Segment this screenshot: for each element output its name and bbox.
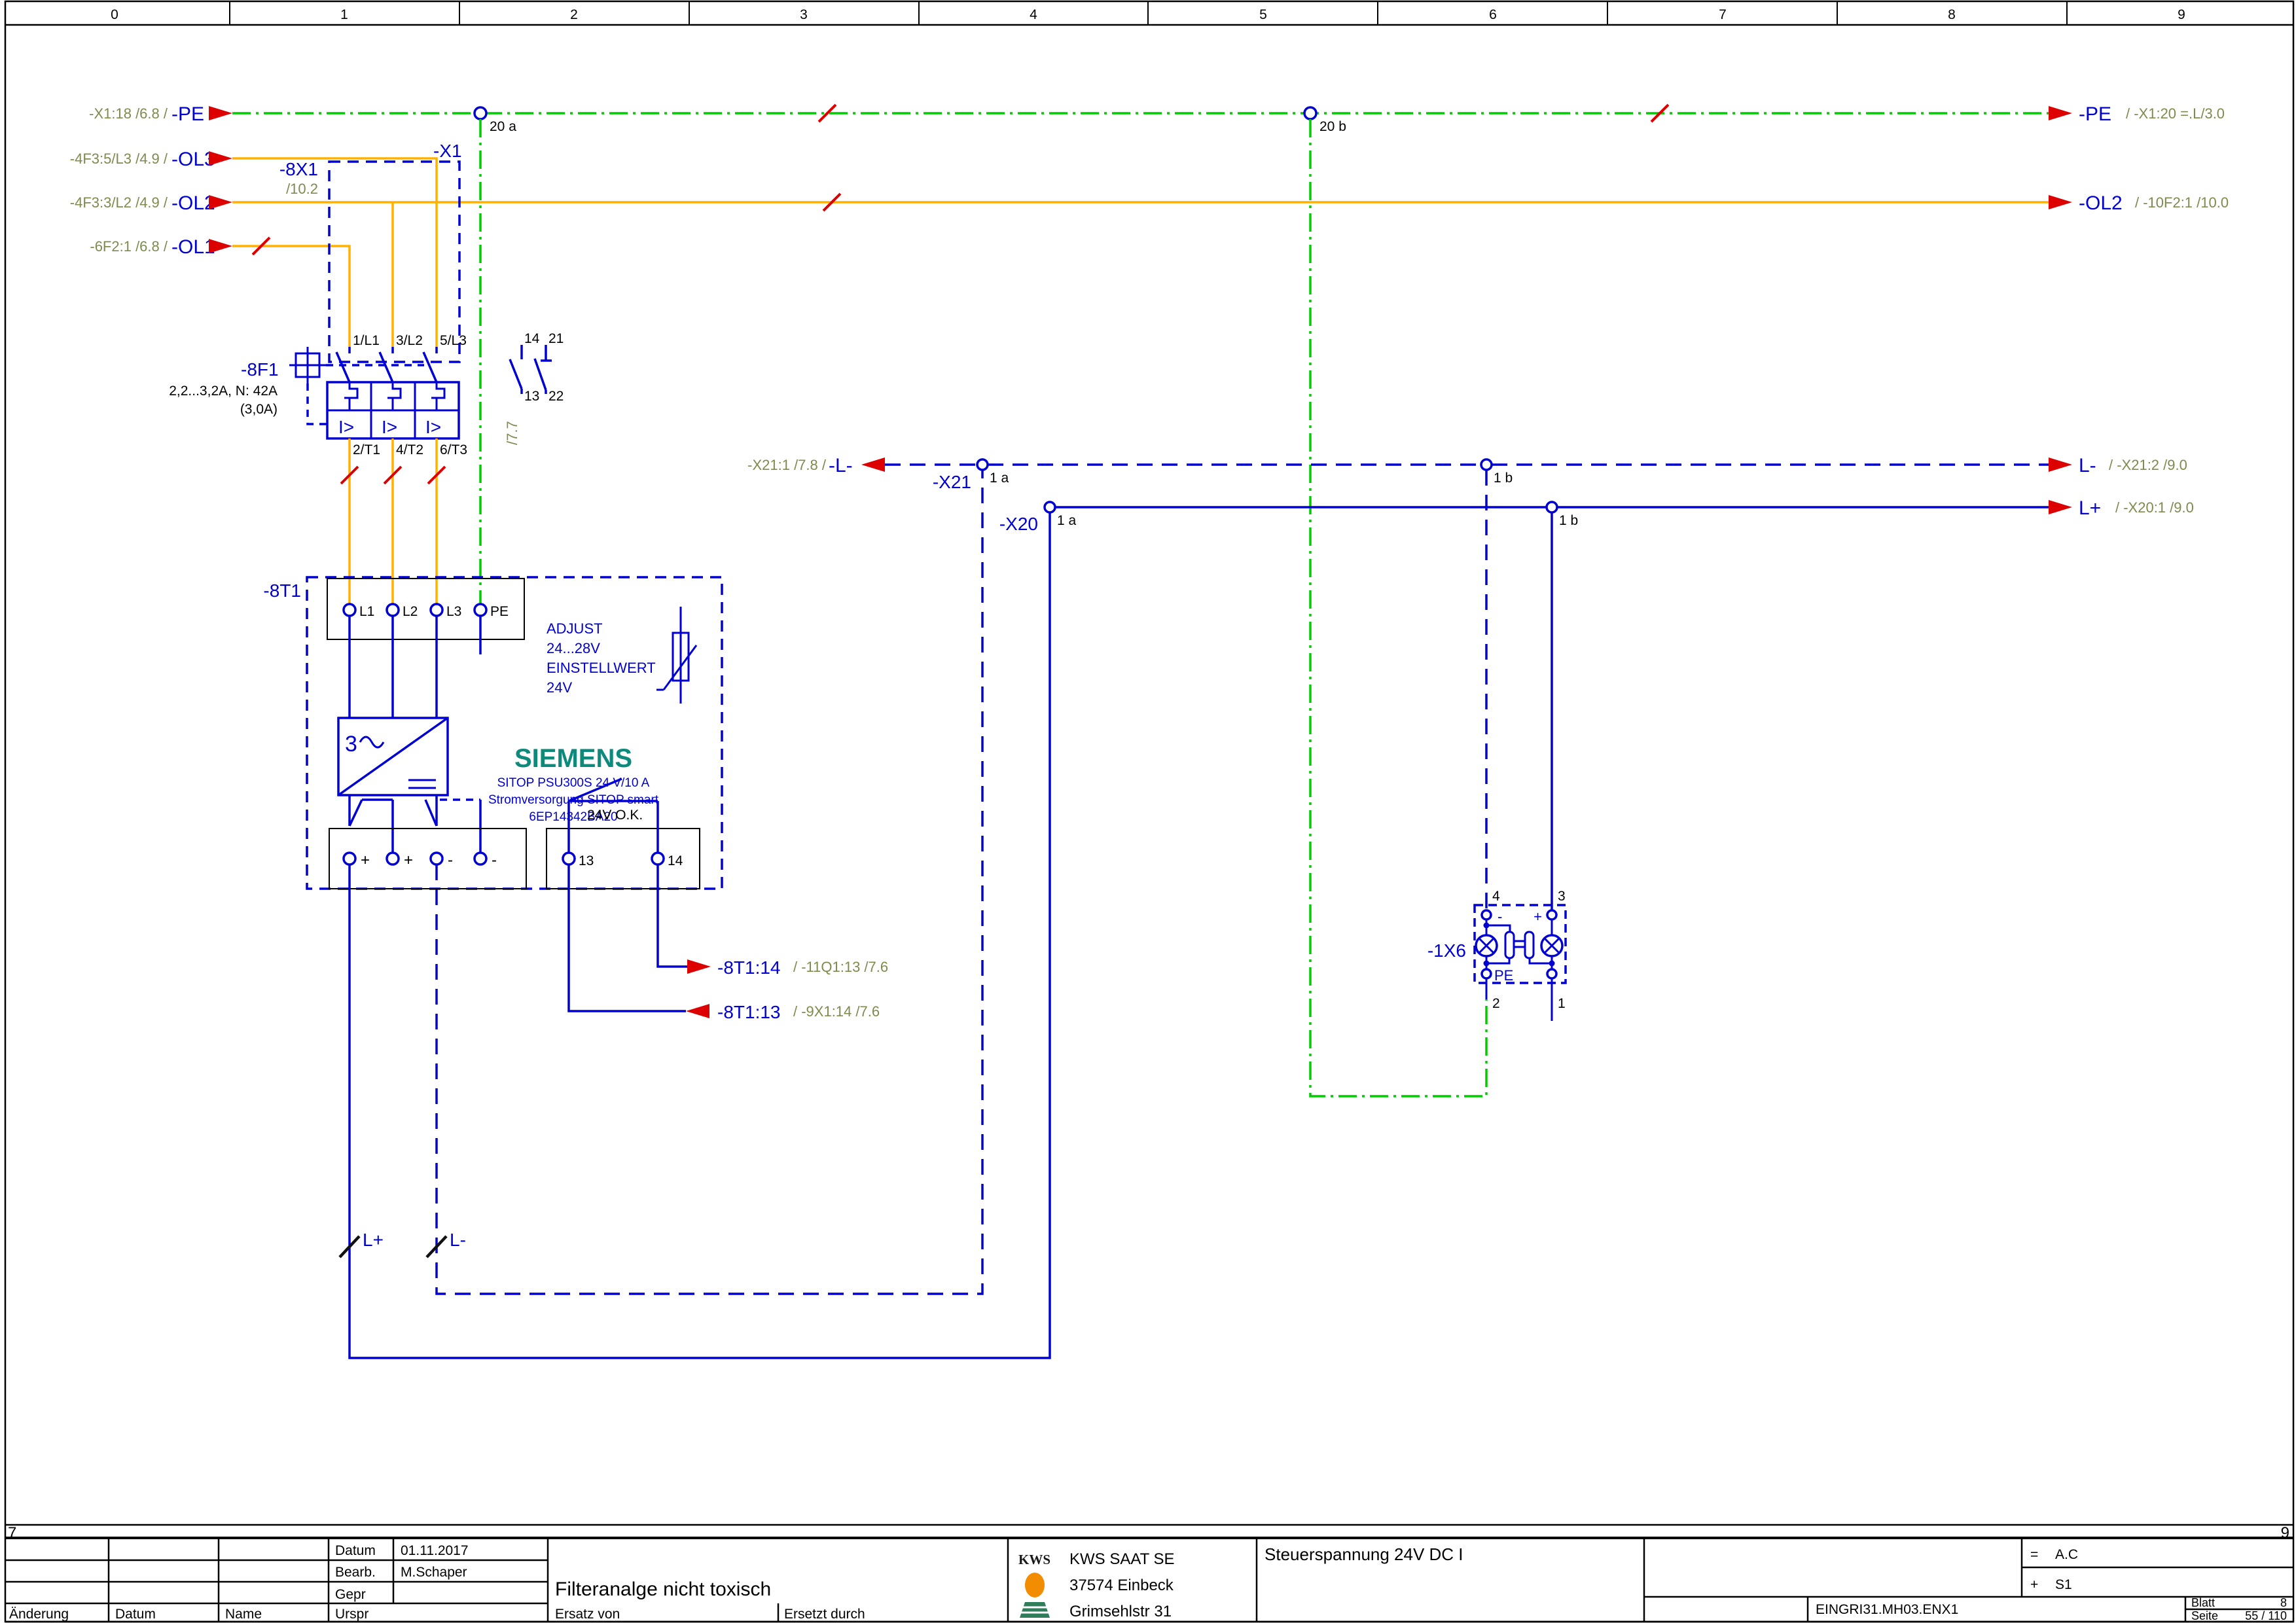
- x20-right-ref: / -X20:1 /9.0: [2115, 499, 2194, 516]
- t13-name: -8T1:13: [717, 1002, 781, 1022]
- psu-8t1: -8T1 L1 L2 L3 PE ADJUST 24...28V EINSTEL…: [263, 577, 722, 889]
- tb-city: 37574 Einbeck: [1069, 1577, 1174, 1594]
- x6-minus-label: -: [1498, 908, 1502, 925]
- ol2-right-arrow-icon: [2049, 195, 2072, 209]
- x21-right-name: L-: [2079, 455, 2096, 476]
- x6-pin-4: 4: [1492, 889, 1500, 904]
- x6-label: -1X6: [1427, 940, 1466, 961]
- t1-converter-icon: 3: [338, 718, 448, 795]
- t1-term-l1-label: L1: [359, 604, 374, 619]
- f1-aux-ref: /7.7: [504, 421, 520, 445]
- t1-out-plus1: [344, 853, 355, 865]
- t1-term-l3: [431, 604, 442, 616]
- title-block: Änderung Datum Name Datum 01.11.2017 Bea…: [5, 1538, 2293, 1622]
- tb-doc: EINGRI31.MH03.ENX1: [1816, 1602, 1958, 1617]
- t1-out-minus2: [475, 853, 486, 865]
- ol3-left-ref: -4F3:5/L3 /4.9 /: [70, 151, 168, 167]
- f1-aux-21: 21: [548, 331, 564, 346]
- x21-term-1b: [1481, 459, 1492, 470]
- ol3-left-name: -OL3: [171, 149, 215, 170]
- t1-out-minus1: [431, 853, 442, 865]
- f1-pole2-top-label: 3/L2: [396, 333, 423, 348]
- t1-out-label-1: +: [361, 851, 370, 869]
- f1-pole1-trip-label: I>: [338, 417, 354, 437]
- t1-adjust-4: 24V: [547, 679, 572, 696]
- tb-name-label: Name: [225, 1607, 262, 1622]
- x6-plus-label: +: [1534, 908, 1542, 925]
- t14-arrow-icon: [687, 959, 711, 974]
- f1-pole3-trip-label: I>: [425, 417, 441, 437]
- terminal-row-x20: 1 a -X20 1 b L+ / -X20:1 /9.0: [999, 497, 2194, 534]
- t1-term-pe: [475, 604, 486, 616]
- kws-logo-beet: [1020, 1602, 1050, 1618]
- pe-left-ref: -X1:18 /6.8 /: [89, 105, 168, 122]
- t1-label: -8T1: [263, 580, 301, 601]
- x6-top-left-terminal: [1482, 910, 1491, 919]
- x20-right-name: L+: [2079, 497, 2101, 519]
- connector-1x6: -1X6 4 3 2 1 - + PE: [1427, 889, 1566, 1021]
- schematic-page: 0 1 2 3 4 5 6 7 8 9 7 9 -X1:18 /6.8 / -P…: [0, 0, 2296, 1623]
- ol3-left-arrow-icon: [209, 151, 232, 166]
- t14-name: -8T1:14: [717, 957, 781, 978]
- t1-term-13: [563, 853, 575, 865]
- tb-bearb-value: M.Schaper: [401, 1565, 467, 1580]
- tb-gepr-label: Gepr: [335, 1587, 366, 1602]
- t1-adjust-2: 24...28V: [547, 640, 600, 656]
- kws-logo: KWS: [1018, 1552, 1050, 1618]
- wire-l-minus: L-: [427, 470, 982, 1294]
- t1-adjust-3: EINSTELLWERT: [547, 660, 656, 676]
- tb-eq-sym: =: [2030, 1547, 2038, 1562]
- tb-plus-sym: +: [2030, 1577, 2038, 1592]
- f1-pole3-top-label: 5/L3: [440, 333, 467, 348]
- f1-rating2: (3,0A): [240, 402, 278, 417]
- t1-term-14: [652, 853, 664, 865]
- pe-left-name: -PE: [171, 103, 204, 125]
- tb-datum-label: Datum: [335, 1543, 376, 1558]
- f1-operator-icon: [289, 347, 326, 383]
- f1-pole2-trip-label: I>: [382, 417, 397, 437]
- x21-label: -X21: [933, 472, 971, 492]
- ol2-right-name: -OL2: [2079, 192, 2123, 214]
- f1-pole1-bottom-label: 2/T1: [353, 442, 380, 457]
- terminal-20a: [475, 107, 486, 119]
- t1-out-plus2: [387, 853, 399, 865]
- l-plus-label: L+: [363, 1230, 384, 1250]
- t1-outline: [307, 577, 722, 889]
- kws-logo-orange: [1025, 1573, 1045, 1597]
- x21-term-1b-label: 1 b: [1494, 471, 1513, 486]
- tb-eq-value: A.C: [2055, 1547, 2078, 1562]
- kws-logo-text: KWS: [1018, 1552, 1050, 1567]
- f1-label: -8F1: [241, 359, 279, 380]
- x6-pin-2: 2: [1492, 996, 1500, 1011]
- tb-datum2-label: Datum: [115, 1607, 156, 1622]
- ruler-col-5: 5: [1259, 7, 1267, 22]
- tb-urspr-label: Urspr: [335, 1607, 368, 1622]
- ol2-right-ref: / -10F2:1 /10.0: [2135, 194, 2229, 211]
- ol1-left-name: -OL1: [171, 236, 215, 258]
- terminal-20b-label: 20 b: [1319, 119, 1346, 134]
- t14-ref: / -11Q1:13 /7.6: [793, 959, 888, 975]
- ol2-left-arrow-icon: [209, 195, 232, 209]
- terminal-block-x1: -X1 -8X1 /10.2 20 a 20 b: [279, 107, 1346, 362]
- tb-bearb-label: Bearb.: [335, 1565, 376, 1580]
- tb-aenderung-label: Änderung: [9, 1607, 69, 1622]
- x20-term-1b: [1547, 502, 1557, 512]
- x20-term-1a-label: 1 a: [1057, 513, 1077, 528]
- tb-ersetzt-label: Ersetzt durch: [784, 1607, 865, 1622]
- t13-arrow-icon: [686, 1004, 709, 1018]
- x21-term-1a-label: 1 a: [990, 471, 1009, 486]
- pe-right-ref: / -X1:20 =.L/3.0: [2126, 105, 2225, 122]
- t1-term-pe-label: PE: [490, 604, 509, 619]
- ruler-col-0: 0: [111, 7, 118, 22]
- x6-pin-1: 1: [1558, 996, 1566, 1011]
- x21-left-arrow-icon: [861, 457, 885, 472]
- t1-brand: SIEMENS: [514, 744, 632, 773]
- ruler-col-8: 8: [1948, 7, 1956, 22]
- t1-out-label-3: -: [448, 851, 453, 869]
- x21-term-1a: [977, 459, 988, 470]
- pe-left-arrow-icon: [209, 106, 232, 120]
- wires-f1-to-t1: [341, 438, 445, 604]
- tb-company: KWS SAAT SE: [1069, 1550, 1175, 1568]
- f1-aux-22: 22: [548, 389, 564, 404]
- ruler-ticks: [230, 1, 2067, 25]
- t1-output-switches: [350, 795, 480, 853]
- f1-aux-13: 13: [524, 389, 539, 404]
- t1-term-l2: [387, 604, 399, 616]
- t1-term-l1: [344, 604, 355, 616]
- terminal-row-x21: -X21:1 /7.8 / -L- 1 a -X21 1 b L- / -X21…: [747, 455, 2187, 492]
- x6-pin-3: 3: [1558, 889, 1566, 904]
- t1-term-14-label: 14: [668, 853, 683, 868]
- ruler-col-7: 7: [1719, 7, 1727, 22]
- x6-bottom-left-terminal: [1482, 969, 1491, 978]
- breaker-8f1: -8F1 2,2...3,2A, N: 42A (3,0A) 1/L1 I> 2…: [169, 331, 564, 457]
- t1-out-label-2: +: [404, 851, 413, 869]
- x20-term-1a: [1045, 502, 1055, 512]
- l-minus-label: L-: [450, 1230, 466, 1250]
- f1-aux-14: 14: [524, 331, 540, 346]
- ruler-col-9: 9: [2178, 7, 2185, 22]
- tb-subject: Steuerspannung 24V DC I: [1265, 1544, 1463, 1564]
- wire-pe: -X1:18 /6.8 / -PE -PE / -X1:20 =.L/3.0: [89, 103, 2225, 125]
- x20-label: -X20: [999, 514, 1038, 534]
- f1-pole3-bottom-label: 6/T3: [440, 442, 467, 457]
- tb-datum-value: 01.11.2017: [401, 1543, 469, 1558]
- t1-adjust-1: ADJUST: [547, 620, 603, 637]
- t1-term-13-label: 13: [579, 853, 594, 868]
- f1-pole2-bottom-label: 4/T2: [396, 442, 423, 457]
- tb-title: Filteranalge nicht toxisch: [555, 1578, 771, 1600]
- x21-right-arrow-icon: [2049, 457, 2072, 472]
- tb-ersatz-label: Ersatz von: [555, 1607, 620, 1622]
- ol1-left-ref: -6F2:1 /6.8 /: [90, 238, 168, 255]
- t1-term-l3-label: L3: [446, 604, 461, 619]
- tb-seite-label: Seite: [2191, 1609, 2218, 1622]
- tb-seite-value: 55 / 110: [2245, 1609, 2287, 1622]
- terminal-20a-label: 20 a: [490, 119, 516, 134]
- t1-product: SITOP PSU300S 24 V/10 A: [497, 776, 650, 790]
- x1-sub-ref: /10.2: [286, 181, 318, 197]
- tb-blatt-value: 8: [2280, 1596, 2287, 1609]
- tb-plus-value: S1: [2055, 1577, 2072, 1592]
- ol2-left-name: -OL2: [171, 192, 215, 214]
- t1-varistor-icon: [656, 607, 696, 704]
- x21-right-ref: / -X21:2 /9.0: [2109, 457, 2187, 473]
- t1-out-label-4: -: [492, 851, 497, 869]
- wire-ol1: -6F2:1 /6.8 / -OL1: [90, 236, 350, 347]
- x20-term-1b-label: 1 b: [1559, 513, 1578, 528]
- x6-pe-label: PE: [1494, 967, 1513, 984]
- x1-sub-label: -8X1: [279, 159, 318, 179]
- ruler-col-4: 4: [1030, 7, 1037, 22]
- t13-ref: / -9X1:14 /7.6: [793, 1003, 880, 1020]
- x6-top-right-terminal: [1547, 910, 1556, 919]
- x6-bottom-right-terminal: [1547, 969, 1556, 978]
- pe-right-name: -PE: [2079, 103, 2111, 125]
- x6-lamp-left-icon: [1476, 935, 1497, 956]
- t1-term-l2-label: L2: [403, 604, 418, 619]
- terminal-20b: [1304, 107, 1316, 119]
- tb-blatt-label: Blatt: [2191, 1596, 2215, 1609]
- x6-lamp-right-icon: [1541, 935, 1562, 956]
- ruler-col-6: 6: [1489, 7, 1497, 22]
- f1-aux-contacts: 14 21 13 22 /7.7: [504, 331, 564, 445]
- ol2-left-ref: -4F3:3/L2 /4.9 /: [70, 194, 168, 211]
- f1-trip-linkage: [308, 383, 327, 424]
- ruler-col-1: 1: [340, 7, 348, 22]
- ol1-left-arrow-icon: [209, 239, 232, 253]
- t1-ok-label: 24V O.K.: [587, 808, 643, 823]
- ruler-col-3: 3: [800, 7, 808, 22]
- x1-label: -X1: [433, 141, 462, 161]
- f1-pole1-top-label: 1/L1: [353, 333, 380, 348]
- tb-street: Grimsehlstr 31: [1069, 1603, 1172, 1620]
- wire-ol2: -4F3:3/L2 /4.9 / -OL2 -OL2 / -10F2:1 /10…: [70, 192, 2229, 347]
- f1-rating: 2,2...3,2A, N: 42A: [169, 383, 278, 399]
- x20-right-arrow-icon: [2049, 500, 2072, 514]
- x21-left-ref: -X21:1 /7.8 /: [747, 457, 827, 473]
- x21-left-name: -L-: [829, 455, 853, 476]
- pe-right-arrow-icon: [2049, 106, 2072, 120]
- ruler-col-2: 2: [570, 7, 578, 22]
- t1-conv-num: 3: [345, 732, 357, 757]
